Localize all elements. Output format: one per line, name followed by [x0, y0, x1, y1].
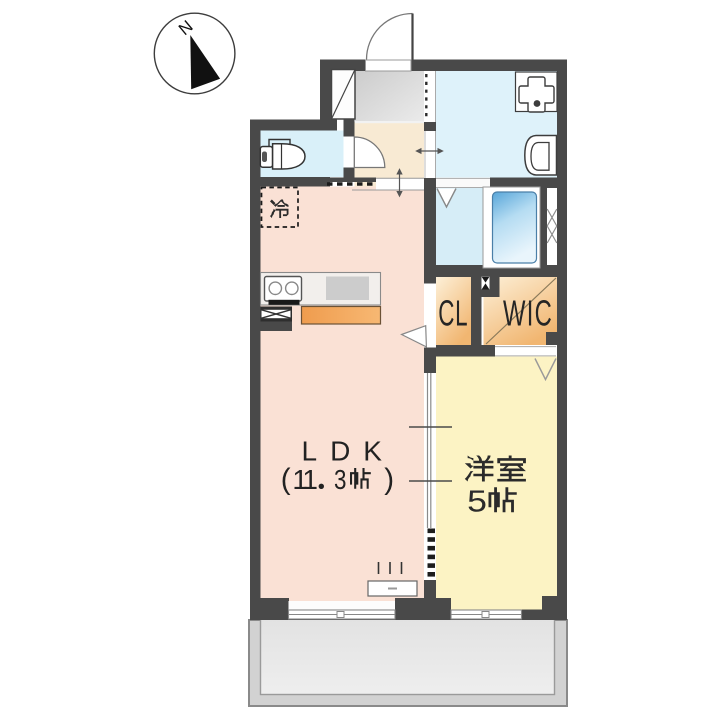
svg-text:): )	[384, 463, 394, 496]
svg-text:5: 5	[467, 485, 487, 519]
svg-text:WIC: WIC	[503, 294, 553, 334]
svg-text:3: 3	[334, 465, 346, 496]
svg-text:1: 1	[302, 464, 318, 495]
svg-text:LDK: LDK	[302, 436, 395, 467]
svg-text:CL: CL	[438, 294, 468, 334]
svg-text:(: (	[281, 463, 291, 496]
